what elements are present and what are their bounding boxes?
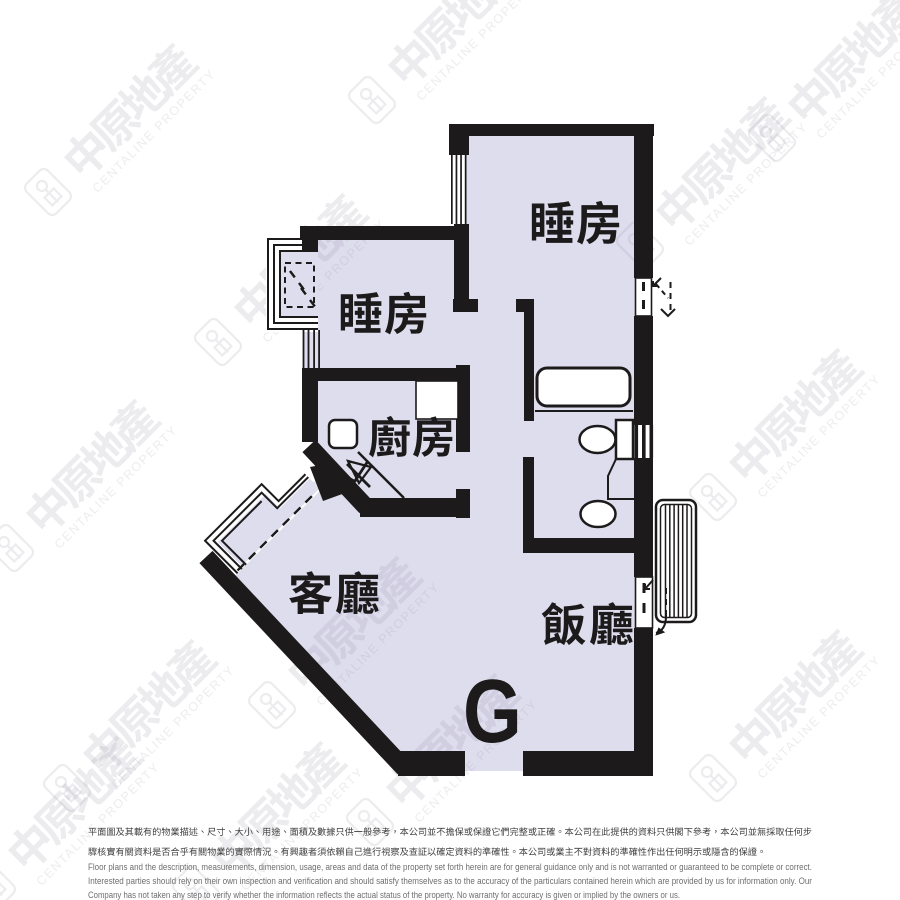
- svg-text:Company has not taken any step: Company has not taken any step to verify…: [88, 890, 680, 900]
- svg-text:G: G: [463, 661, 522, 762]
- svg-text:Floor plans and the descriptio: Floor plans and the description, measure…: [88, 862, 812, 872]
- svg-text:Interested parties should rely: Interested parties should rely on their …: [88, 876, 812, 886]
